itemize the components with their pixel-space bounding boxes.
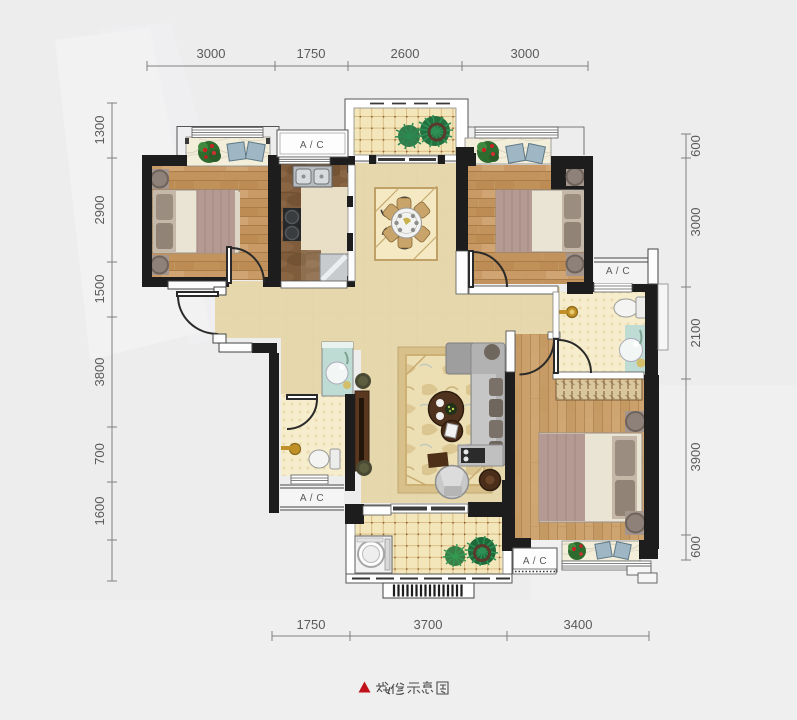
svg-text:A / C: A / C	[523, 556, 547, 567]
svg-text:3900: 3900	[688, 443, 703, 472]
svg-text:A / C: A / C	[300, 493, 324, 504]
svg-text:3000: 3000	[197, 46, 226, 61]
svg-text:700: 700	[92, 443, 107, 465]
svg-text:2100: 2100	[688, 319, 703, 348]
svg-text:600: 600	[688, 135, 703, 157]
svg-text:A / C: A / C	[606, 266, 630, 277]
svg-text:3000: 3000	[511, 46, 540, 61]
svg-text:1500: 1500	[92, 275, 107, 304]
svg-text:2600: 2600	[391, 46, 420, 61]
svg-text:3800: 3800	[92, 358, 107, 387]
svg-text:3700: 3700	[414, 617, 443, 632]
svg-text:600: 600	[688, 536, 703, 558]
svg-text:3000: 3000	[688, 208, 703, 237]
svg-text:1600: 1600	[92, 497, 107, 526]
svg-text:1750: 1750	[297, 46, 326, 61]
svg-text:1750: 1750	[297, 617, 326, 632]
svg-text:A / C: A / C	[300, 140, 324, 151]
svg-text:2900: 2900	[92, 196, 107, 225]
svg-text:1300: 1300	[92, 116, 107, 145]
svg-text:3400: 3400	[564, 617, 593, 632]
